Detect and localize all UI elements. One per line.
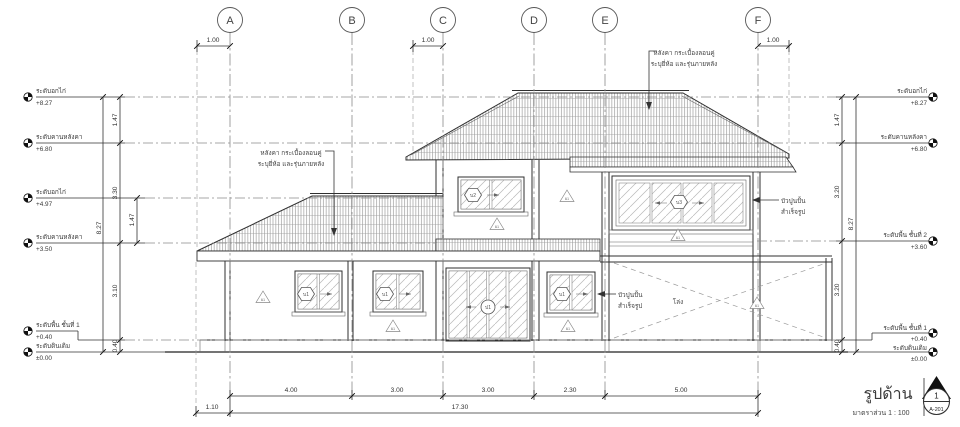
molding-note-right-line2: สำเร็จรูป	[781, 207, 805, 216]
level-right-ridge-value: +8.27	[911, 100, 928, 107]
dim-bay-ab: 4.00	[285, 387, 298, 394]
roof-note-right-line2: ระบุยี่ห้อ และรุ่นภายหลัง	[651, 59, 718, 68]
grid-bubble-a: A	[226, 15, 234, 27]
level-left-roofbeam2-value: +3.50	[36, 246, 53, 253]
tag-wall-7: ผ1	[755, 304, 759, 308]
level-left-ridge-value: +8.27	[36, 100, 53, 107]
dim-bay-cd: 3.00	[482, 387, 495, 394]
tag-window-2f: บ2	[470, 193, 476, 199]
carport-open-area: โล่ง	[614, 263, 826, 338]
dim-offset-f: 1.00	[767, 37, 780, 44]
tag-wall-5: ผ1	[565, 197, 569, 201]
level-left-floor1-value: +0.40	[36, 334, 53, 341]
dim-right-4: 0.40	[834, 339, 841, 352]
tag-wall-3: ผ1	[566, 327, 570, 331]
grid-bubbles: A B C D E F	[218, 8, 771, 33]
dim-left-1: 1.47	[112, 113, 119, 126]
dim-bay-bc: 3.00	[391, 387, 404, 394]
elevation-drawing-sheet: โล่ง	[0, 0, 960, 427]
level-left-roofbeam-value: +6.80	[36, 146, 53, 153]
tag-window-2f-large: บ3	[676, 200, 682, 206]
open-area-label: โล่ง	[673, 298, 683, 306]
roof-note-right-line1: หลังคา กระเบื้องลอนคู่	[653, 48, 714, 57]
tag-window2: บ1	[382, 292, 388, 298]
dim-left-2: 3.30	[112, 186, 119, 199]
roof-note-left-line1: หลังคา กระเบื้องลอนคู่	[260, 148, 321, 157]
dim-offset-c: 1.00	[422, 37, 435, 44]
level-left-ground-name: ระดับดินเดิม	[36, 342, 70, 350]
molding-note-right-line1: บัวปูนปั้น	[781, 196, 806, 205]
tag-wall-6: ผ1	[676, 236, 680, 240]
sheet-number: A-201	[929, 407, 943, 413]
dim-right-1: 1.47	[834, 113, 841, 126]
level-left-ridge-name: ระดับอกไก่	[36, 87, 66, 95]
dim-right-overall: 8.27	[848, 217, 855, 230]
dim-left-4: 0.40	[112, 339, 119, 352]
dim-right-3: 3.20	[834, 283, 841, 296]
tag-wall-2: ผ1	[391, 327, 395, 331]
dim-left-3: 3.10	[112, 284, 119, 297]
dim-total: 17.30	[452, 404, 469, 411]
molding-note-mid-line2: สำเร็จรูป	[618, 301, 642, 310]
level-right-floor2-value: +3.60	[911, 244, 928, 251]
level-right-ridge-name: ระดับอกไก่	[897, 87, 927, 95]
dim-offset-left: 1.10	[206, 404, 219, 411]
grid-bubble-d: D	[530, 15, 538, 27]
dim-bay-ef: 5.00	[675, 387, 688, 394]
dimension-lines: 1.00 1.00 1.00 8.27 1.47 3.30 3.10 0.40 …	[96, 37, 859, 417]
dim-offset-a: 1.00	[207, 37, 220, 44]
dim-right-2: 3.20	[834, 185, 841, 198]
level-right-ground-value: ±0.00	[911, 356, 927, 363]
grid-bubble-c: C	[439, 15, 447, 27]
drawing-title: รูปด้าน	[863, 385, 912, 404]
roof-note-left-line2: ระบุยี่ห้อ และรุ่นภายหลัง	[258, 159, 325, 168]
level-right-ground-name: ระดับดินเดิม	[893, 344, 927, 352]
level-right-floor1-value: +0.40	[911, 336, 928, 343]
tag-window3: บ1	[559, 292, 565, 298]
level-right-roofbeam-name: ระดับคานหลังคา	[881, 134, 927, 141]
dim-left-overall: 8.27	[96, 221, 103, 234]
level-right-roofbeam-value: +6.80	[911, 146, 928, 153]
molding-note-mid-line1: บัวปูนปั้น	[618, 290, 643, 299]
sheet-detail-number: 1	[934, 392, 939, 401]
elevation-svg: โล่ง	[0, 0, 960, 427]
level-right-floor1-name: ระดับพื้น ชั้นที่ 1	[883, 323, 927, 332]
dim-bay-de: 2.30	[564, 387, 577, 394]
tag-wall-1: ผ1	[261, 298, 265, 302]
level-left-ridge2-name: ระดับอกไก่	[36, 188, 66, 196]
level-right-floor2-name: ระดับพื้น ชั้นที่ 2	[883, 230, 927, 239]
level-left-ridge2-value: +4.97	[36, 201, 53, 208]
grid-bubble-b: B	[348, 15, 355, 27]
tag-door: ป1	[485, 305, 491, 311]
tag-window1: บ1	[303, 292, 309, 298]
level-left-roofbeam-name: ระดับคานหลังคา	[36, 134, 82, 141]
title-block: รูปด้าน มาตราส่วน 1 : 100 1 A-201	[852, 376, 951, 417]
level-left-ground-value: ±0.00	[36, 355, 52, 362]
tag-wall-4: ผ1	[495, 225, 499, 229]
sheet-reference-symbol: 1 A-201	[922, 376, 951, 415]
grid-bubble-f: F	[755, 15, 762, 27]
level-left-roofbeam2-name: ระดับคานหลังคา	[36, 234, 82, 241]
grid-bubble-e: E	[601, 15, 608, 27]
dim-left-inner: 1.47	[129, 213, 136, 226]
level-markers-left: ระดับอกไก่ +8.27 ระดับคานหลังคา +6.80 ระ…	[24, 87, 165, 362]
level-left-floor1-name: ระดับพื้น ชั้นที่ 1	[36, 320, 80, 329]
drawing-scale: มาตราส่วน 1 : 100	[852, 410, 909, 417]
